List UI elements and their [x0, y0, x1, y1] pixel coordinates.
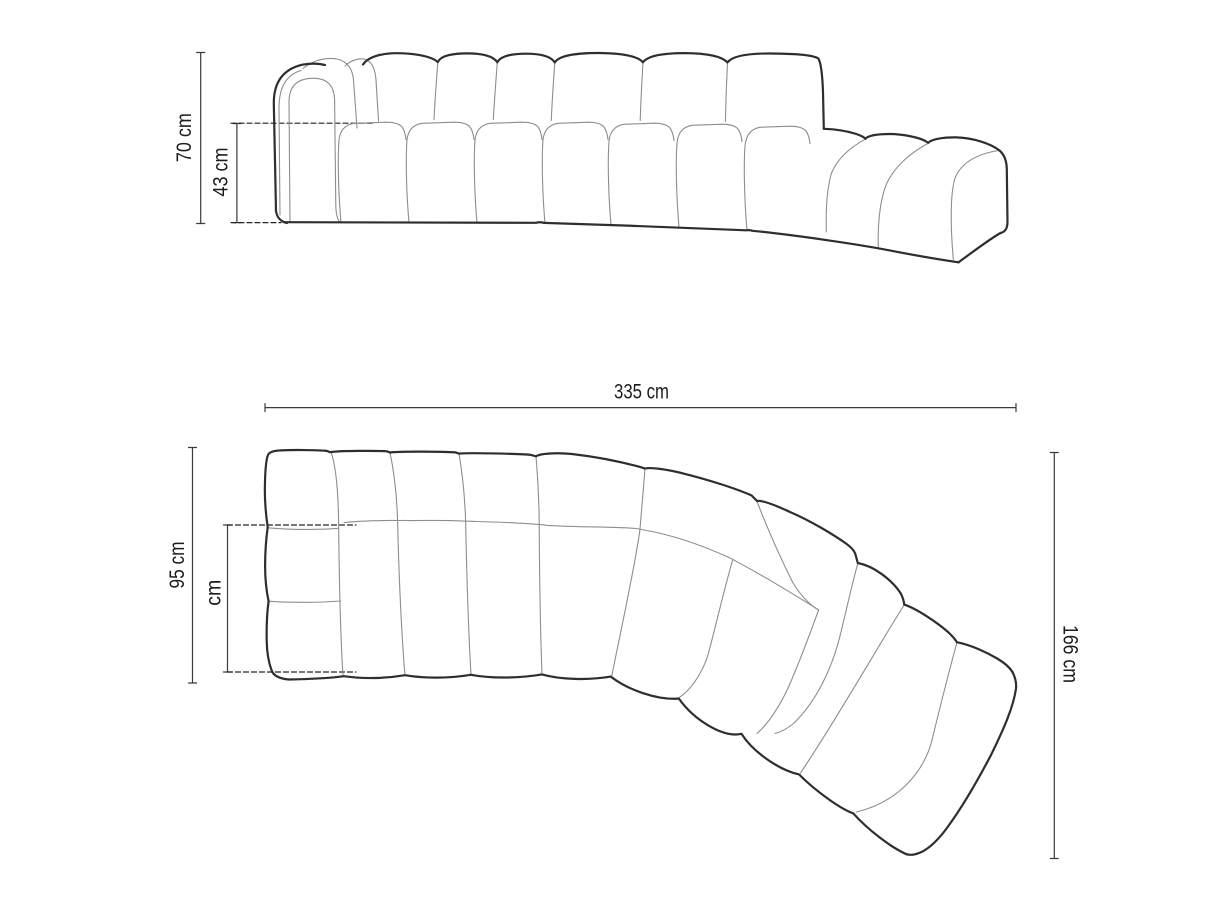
svg-text:166 cm: 166 cm [1059, 625, 1082, 683]
svg-text:43 cm: 43 cm [209, 148, 232, 197]
svg-text:cm: cm [202, 580, 225, 606]
svg-text:70 cm: 70 cm [173, 113, 196, 162]
svg-text:95 cm: 95 cm [166, 542, 189, 589]
svg-text:335 cm: 335 cm [614, 381, 669, 404]
